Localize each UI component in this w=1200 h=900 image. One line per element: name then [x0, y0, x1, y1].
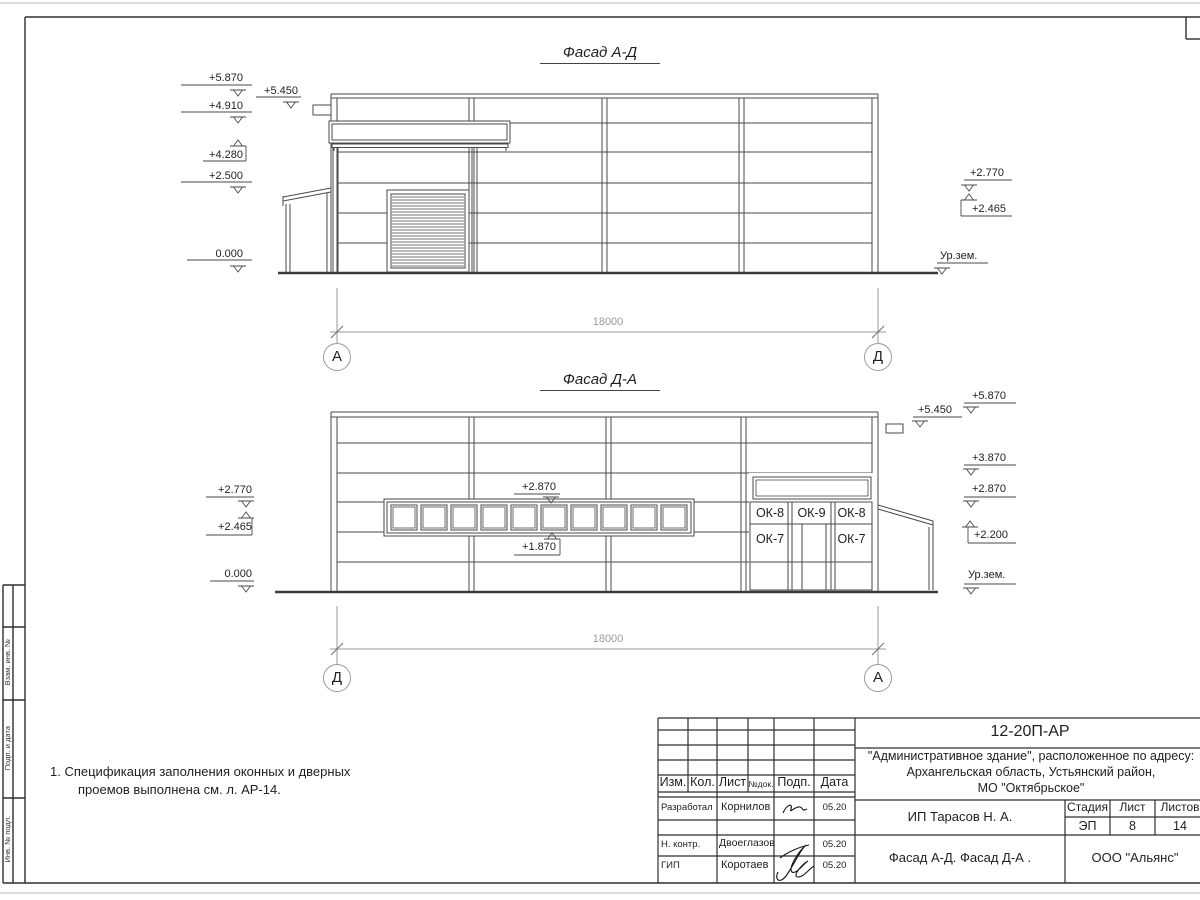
dimension-lines-top: [324, 288, 892, 371]
titleblock-col-list: Лист: [717, 776, 748, 790]
window-tag: ОК-8: [752, 507, 788, 521]
dimension-value: 18000: [583, 316, 633, 328]
titleblock-company: ООО "Альянс": [1065, 851, 1200, 865]
titleblock-col-izm: Изм.: [658, 776, 688, 790]
elevation-mark: +4.280: [181, 149, 243, 161]
titleblock-date: 05.20: [814, 803, 855, 813]
titleblock-col-kol: Кол.: [688, 776, 717, 790]
elevation-mark: +1.870: [512, 541, 556, 553]
elevation-mark: +2.465: [972, 203, 1006, 215]
elevation-mark: +5.870: [181, 72, 243, 84]
titleblock-date: 05.20: [814, 840, 855, 850]
titleblock-role: Н. контр.: [661, 840, 700, 850]
titleblock-name: Коротаев: [721, 859, 769, 871]
titleblock-role: Разработал: [661, 803, 713, 813]
window-tag: ОК-9: [792, 507, 831, 521]
titleblock-project-line: МО "Октябрьское": [857, 782, 1200, 796]
drawing-sheet: Фасад А-Д Фасад Д-А 18000 18000 А Д Д А …: [0, 0, 1200, 900]
titleblock-col-data: Дата: [814, 776, 855, 790]
titleblock-sheets-value: 14: [1155, 820, 1200, 834]
titleblock-document-code: 12-20П-АР: [855, 723, 1200, 741]
facade-bottom-title: Фасад Д-А: [540, 372, 660, 391]
titleblock-name: Двоеглазов: [719, 838, 775, 850]
titleblock-col-ndok: №док.: [748, 780, 774, 789]
elevation-mark: +5.450: [252, 85, 298, 97]
side-strip-label: Инв. № подл.: [4, 807, 12, 871]
axis-bubble: Д: [864, 349, 892, 366]
axis-bubble: Д: [323, 670, 351, 687]
elevation-mark: +5.450: [918, 404, 952, 416]
elevation-mark: +4.910: [181, 100, 243, 112]
titleblock-stage-value: ЭП: [1065, 820, 1110, 834]
titleblock-col-podp: Подп.: [774, 776, 814, 790]
elevation-mark: 0.000: [181, 248, 243, 260]
elevation-mark: +2.870: [512, 481, 556, 493]
axis-bubble: А: [323, 349, 351, 366]
elevation-mark: +2.200: [974, 529, 1008, 541]
titleblock-name: Корнилов: [721, 801, 770, 813]
facade-top-title: Фасад А-Д: [540, 45, 660, 64]
elevation-mark: +3.870: [972, 452, 1006, 464]
titleblock-role: ГИП: [661, 861, 680, 871]
window-tag: ОК-7: [752, 533, 788, 547]
elevation-mark: +5.870: [972, 390, 1006, 402]
window-tag: ОК-8: [835, 507, 868, 521]
titleblock-date: 05.20: [814, 861, 855, 871]
titleblock-sheet-value: 8: [1110, 820, 1155, 834]
titleblock-project-line: Архангельская область, Устьянский район,: [857, 766, 1200, 780]
facade-top-drawing: [278, 94, 938, 273]
axis-bubble: А: [864, 670, 892, 687]
window-tag: ОК-7: [835, 533, 868, 547]
elevation-mark-arrows-top: [181, 85, 1012, 274]
ground-level-label: Ур.зем.: [940, 250, 977, 262]
elevation-mark: +2.500: [181, 170, 243, 182]
elevation-mark: +2.770: [206, 484, 252, 496]
titleblock-sheet-title: Фасад А-Д. Фасад Д-А .: [855, 851, 1065, 865]
titleblock-sheets-header: Листов: [1155, 801, 1200, 814]
side-strip-label: Подп. и дата: [4, 716, 12, 780]
elevation-mark: +2.870: [972, 483, 1006, 495]
dimension-value: 18000: [583, 633, 633, 645]
note-text: проемов выполнена см. л. АР-14.: [78, 783, 281, 797]
dimension-lines-bottom: [324, 606, 892, 692]
elevation-mark: +2.770: [970, 167, 1004, 179]
titleblock-project-line: "Административное здание", расположенное…: [857, 750, 1200, 764]
elevation-mark: +2.465: [206, 521, 252, 533]
ground-level-label: Ур.зем.: [968, 569, 1005, 581]
titleblock-sheet-header: Лист: [1110, 801, 1155, 814]
titleblock-stage-header: Стадия: [1065, 801, 1110, 814]
titleblock-client: ИП Тарасов Н. А.: [855, 810, 1065, 824]
elevation-mark: 0.000: [206, 568, 252, 580]
facade-bottom-drawing: [275, 412, 938, 592]
note-text: 1. Спецификация заполнения оконных и две…: [50, 765, 350, 779]
side-strip-label: Взам. инв. №: [4, 630, 12, 694]
signature-strokes: [777, 805, 814, 880]
